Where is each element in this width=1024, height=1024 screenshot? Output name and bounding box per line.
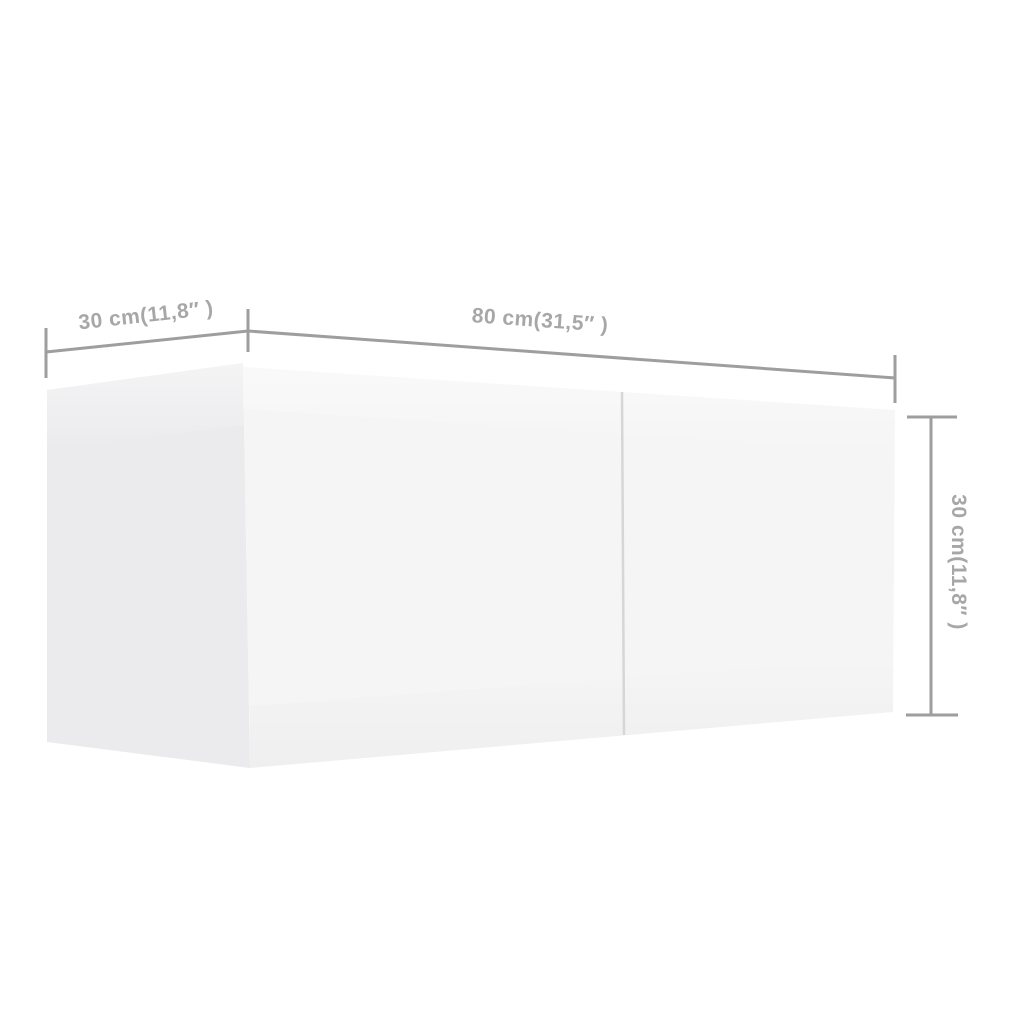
product-dimension-diagram: 30 cm(11,8″ ) 80 cm(31,5″ ) 30 cm(11,8″ … — [0, 0, 1024, 1024]
cabinet-drawing — [0, 0, 1024, 1024]
depth-line — [46, 331, 248, 352]
width-line — [248, 331, 895, 378]
height-dimension-label: 30 cm(11,8″ ) — [946, 494, 970, 630]
